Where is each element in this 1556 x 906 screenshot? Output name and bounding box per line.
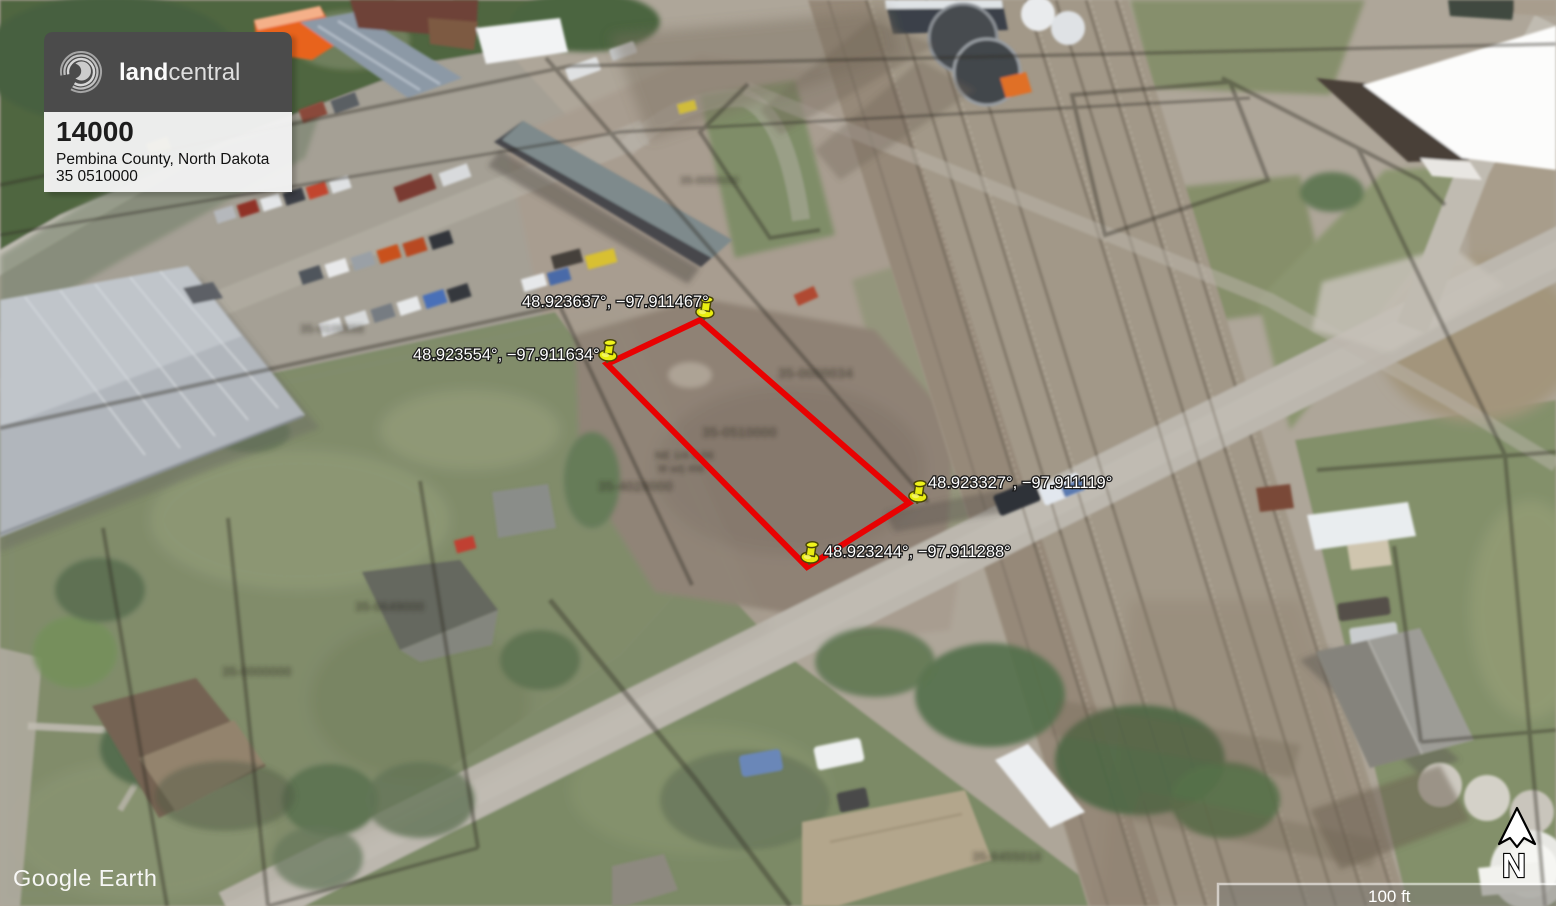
svg-text:100 ft: 100 ft xyxy=(1368,887,1411,906)
svg-text:35-0510000: 35-0510000 xyxy=(702,424,777,440)
svg-text:48.923554°, −97.911634°: 48.923554°, −97.911634° xyxy=(413,346,600,364)
svg-text:35-8455010: 35-8455010 xyxy=(972,849,1041,864)
svg-text:Google Earth: Google Earth xyxy=(13,865,157,891)
svg-text:48.923327°, −97.911119°: 48.923327°, −97.911119° xyxy=(928,474,1112,492)
svg-text:35-0059000: 35-0059000 xyxy=(680,175,739,187)
svg-text:14000: 14000 xyxy=(56,116,134,147)
svg-text:35 0510000: 35 0510000 xyxy=(56,168,138,185)
svg-text:Pembina County, North Dakota: Pembina County, North Dakota xyxy=(56,151,270,168)
svg-text:35-0000000: 35-0000000 xyxy=(222,664,291,679)
svg-text:48.923244°, −97.911288°: 48.923244°, −97.911288° xyxy=(824,543,1011,561)
svg-text:landcentral: landcentral xyxy=(119,59,240,86)
svg-text:35-0108888: 35-0108888 xyxy=(300,322,364,336)
svg-text:35-0649000: 35-0649000 xyxy=(355,599,424,614)
svg-text:35-4028000: 35-4028000 xyxy=(598,478,673,494)
svg-text:N: N xyxy=(1502,847,1526,884)
svg-text:35-0000034: 35-0000034 xyxy=(778,365,853,381)
svg-text:W adj 456: W adj 456 xyxy=(658,464,705,475)
svg-text:48.923637°, −97.911467°: 48.923637°, −97.911467° xyxy=(522,293,709,311)
